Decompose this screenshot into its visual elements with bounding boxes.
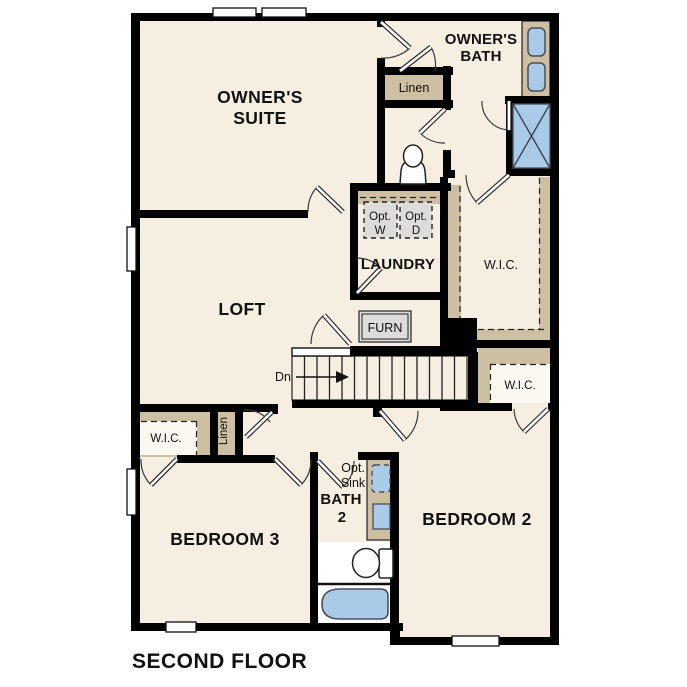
wall-top <box>131 13 559 21</box>
wall-wic-bedroom2-west <box>468 352 478 411</box>
stairs-rail <box>292 348 352 356</box>
wall-linen-upper-bottom <box>377 100 453 108</box>
floor-plan: OWNER'S SUITE OWNER'S BATH Linen Opt. W … <box>0 0 687 687</box>
wall-shower-top <box>505 96 559 104</box>
wall-right <box>550 13 559 645</box>
room-label-owners-suite-2: SUITE <box>233 108 287 128</box>
floor-plan-drawing: OWNER'S SUITE OWNER'S BATH Linen Opt. W … <box>0 0 687 687</box>
wall-wic-owners-bottom <box>448 340 553 348</box>
wall-wic-linen-divider <box>210 404 218 457</box>
wall-furnace-top <box>350 292 448 300</box>
shower <box>513 104 550 168</box>
label-wic-bedroom3: W.I.C. <box>150 433 181 445</box>
wall-bath-south-stub <box>443 170 455 178</box>
wic-owners-right-shelf <box>539 177 550 340</box>
room-label-laundry: LAUNDRY <box>361 256 435 273</box>
wall-linen-upper-east <box>443 66 451 110</box>
room-label-bath2-2: 2 <box>338 509 347 526</box>
room-label-bath2-1: BATH <box>320 491 361 508</box>
window-top-2 <box>262 8 306 17</box>
label-wic-bedroom2: W.I.C. <box>504 380 535 392</box>
label-linen-lower: Linen <box>218 417 230 445</box>
label-opt-washer-2: W <box>375 225 386 237</box>
wall-suite-south <box>140 210 308 218</box>
wall-wic-bedroom2-stub <box>548 403 559 411</box>
window-top-1 <box>213 8 256 17</box>
wall-laundry-west <box>350 183 358 300</box>
room-label-owners-suite-1: OWNER'S <box>217 87 303 107</box>
wall-bath-west <box>377 58 385 191</box>
label-opt-sink-1: Opt. <box>341 461 365 475</box>
label-opt-sink-2: Sink <box>341 476 366 490</box>
wall-bath2-west <box>310 452 318 631</box>
wall-linen-upper-top <box>377 67 453 75</box>
room-label-bedroom2: BEDROOM 2 <box>422 509 532 529</box>
room-label-owners-bath-1: OWNER'S <box>445 31 517 48</box>
wic-bedroom2-left-shelf <box>478 348 490 403</box>
window-loft-left <box>127 227 136 271</box>
wall-linen-lower-east <box>235 404 243 457</box>
room-label-loft: LOFT <box>218 299 265 319</box>
wall-bedroom3-top <box>177 455 275 463</box>
label-wic-owners: W.I.C. <box>484 258 518 272</box>
window-bedroom3-left <box>127 469 136 515</box>
wic-owners-bottom-shelf <box>477 329 550 340</box>
label-linen-upper: Linen <box>399 81 430 95</box>
label-opt-dryer-2: D <box>412 225 420 237</box>
wic-owners-left-shelf <box>448 185 461 320</box>
label-opt-washer-1: Opt. <box>369 211 391 223</box>
owners-bath-sink-2 <box>528 63 545 91</box>
bathtub <box>322 589 388 619</box>
wall-shower-bottom <box>508 168 559 176</box>
window-bedroom2-bottom <box>452 636 499 646</box>
toilet-owners <box>400 145 426 184</box>
owners-bath-sink-1 <box>528 28 545 56</box>
label-stairs-down: Dn <box>275 370 291 384</box>
toilet-tank <box>404 145 423 167</box>
toilet2-tank <box>379 549 393 578</box>
label-opt-dryer-1: Opt. <box>405 211 427 223</box>
toilet-bath2 <box>353 549 394 579</box>
label-furnace: FURN <box>368 321 403 335</box>
wall-left <box>131 13 140 631</box>
bath2-sink <box>373 504 390 529</box>
window-bedroom3-bottom <box>166 622 196 632</box>
bath2-optional-sink <box>372 465 390 492</box>
room-label-owners-bath-2: BATH <box>460 48 501 65</box>
floor-title: SECOND FLOOR <box>132 650 307 673</box>
toilet2-bowl <box>353 549 380 578</box>
room-label-bedroom3: BEDROOM 3 <box>170 529 280 549</box>
